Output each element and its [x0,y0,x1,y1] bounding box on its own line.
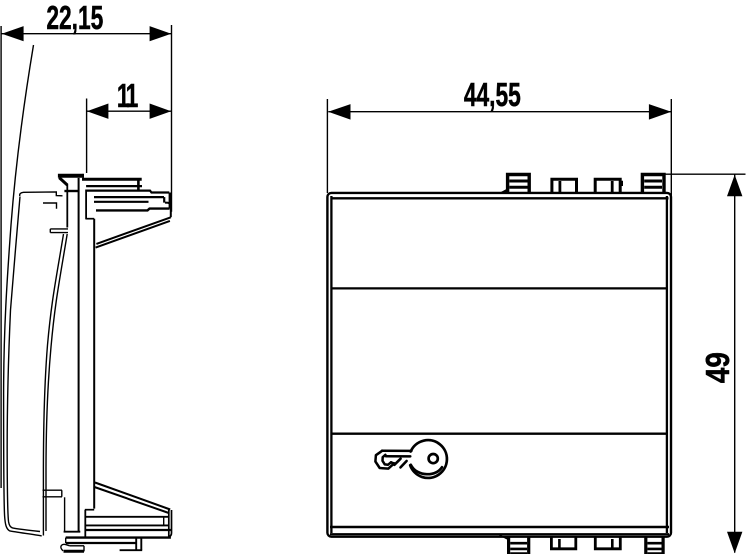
svg-text:44,55: 44,55 [464,77,521,114]
svg-text:11: 11 [117,78,138,115]
svg-text:49: 49 [700,352,737,383]
svg-text:22,15: 22,15 [46,0,103,37]
